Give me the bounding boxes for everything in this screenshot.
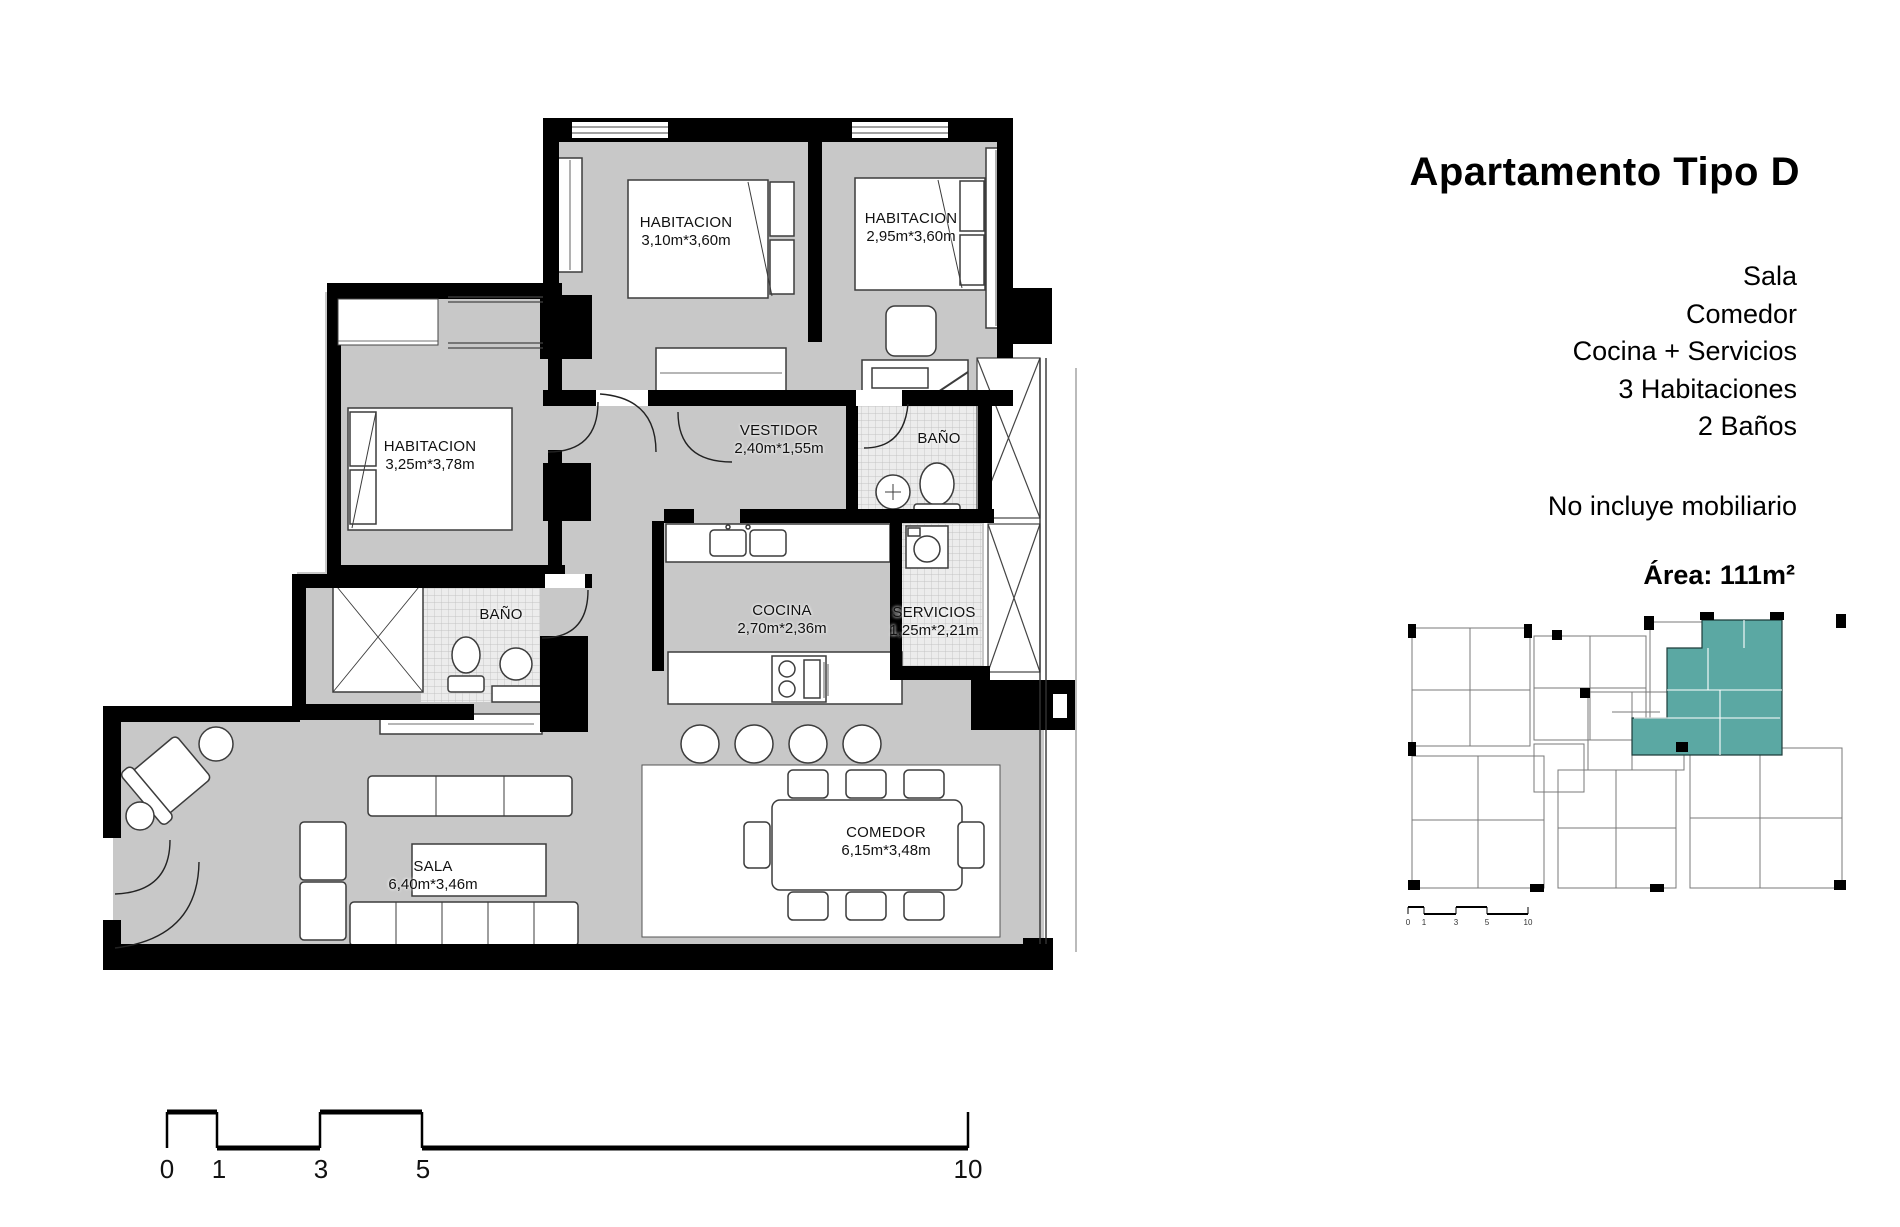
room-label-vestidor: VESTIDOR2,40m*1,55m	[734, 422, 823, 458]
room-label-habitacion-1: HABITACION3,10m*3,60m	[640, 214, 733, 250]
scale-label-3: 3	[314, 1154, 328, 1185]
scale-label-0: 0	[160, 1154, 174, 1185]
desk-chair	[886, 306, 936, 356]
keyplan-scale-label-1: 1	[1422, 918, 1426, 927]
room-label-servicios: SERVICIOS1,25m*2,21m	[889, 604, 978, 640]
bar-stool	[681, 725, 719, 763]
dining-chair	[788, 770, 828, 798]
room-label-sala: SALA6,40m*3,46m	[388, 858, 477, 894]
feature-comedor: Comedor	[1573, 296, 1797, 334]
room-label-cocina: COCINA2,70m*2,36m	[737, 602, 826, 638]
scale-bar	[167, 1112, 968, 1148]
scale-label-1: 1	[212, 1154, 226, 1185]
keyplan-scale-label-3: 3	[1454, 918, 1458, 927]
keyplan-scale-bar	[1408, 907, 1528, 914]
keyplan-highlight	[1632, 620, 1782, 755]
scale-label-5: 5	[416, 1154, 430, 1185]
room-label-bano-top: BAÑO	[917, 430, 960, 448]
scale-label-10: 10	[954, 1154, 983, 1185]
sofa-front	[350, 902, 578, 946]
sink-2	[500, 648, 532, 680]
keyplan-scale-label-0: 0	[1406, 918, 1410, 927]
keyplan-scale-label-5: 5	[1485, 918, 1489, 927]
toilet-2	[452, 637, 480, 673]
area-label: Área: 111m²	[1643, 560, 1795, 591]
room-label-comedor: COMEDOR6,15m*3,48m	[841, 824, 930, 860]
room-label-habitacion-3: HABITACION3,25m*3,78m	[384, 438, 477, 474]
page-title: Apartamento Tipo D	[1409, 150, 1800, 195]
room-label-habitacion-2: HABITACION2,95m*3,60m	[865, 210, 958, 246]
side-table	[199, 727, 233, 761]
feature-list: Sala Comedor Cocina + Servicios 3 Habita…	[1573, 258, 1797, 446]
furniture-note: No incluye mobiliario	[1548, 491, 1797, 522]
feature-banos: 2 Baños	[1573, 408, 1797, 446]
building-key-plan	[1408, 612, 1846, 914]
toilet-1	[920, 463, 954, 505]
room-label-bano-left: BAÑO	[479, 606, 522, 624]
sofa-back	[368, 776, 572, 816]
feature-cocina-servicios: Cocina + Servicios	[1573, 333, 1797, 371]
feature-habitaciones: 3 Habitaciones	[1573, 371, 1797, 409]
keyplan-scale-label-10: 10	[1524, 918, 1533, 927]
feature-sala: Sala	[1573, 258, 1797, 296]
page: { "panel": { "title": "Apartamento Tipo …	[0, 0, 1900, 1227]
